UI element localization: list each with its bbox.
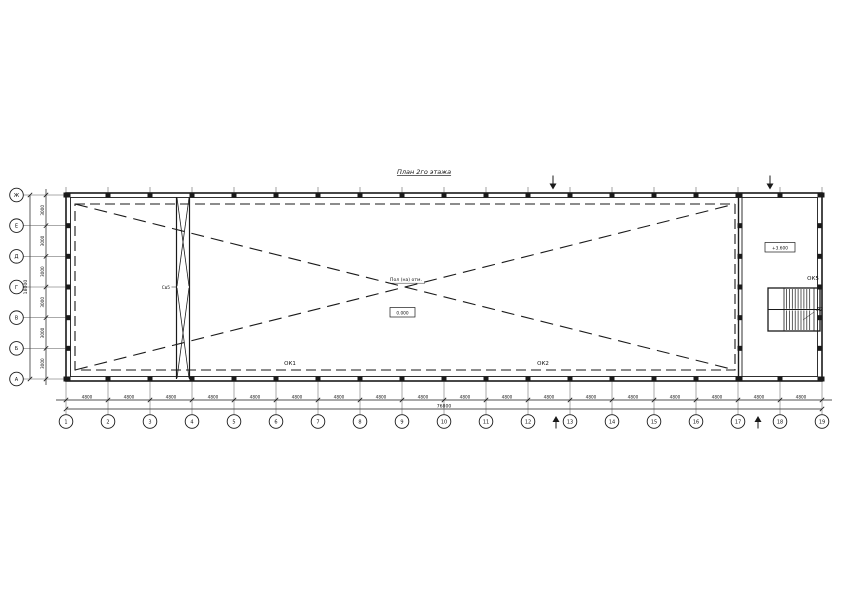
axis-letter: Б bbox=[15, 346, 19, 352]
axis-number: 14 bbox=[609, 419, 615, 425]
column-marker bbox=[66, 223, 71, 228]
column-marker bbox=[694, 193, 699, 198]
column-marker bbox=[358, 193, 363, 198]
column-marker bbox=[526, 377, 531, 382]
column-marker bbox=[484, 377, 489, 382]
column-marker bbox=[232, 377, 237, 382]
window-label-ok1: ОК1 bbox=[284, 361, 296, 367]
bay-dimension: 3000 bbox=[40, 266, 45, 277]
bay-dimension: 4800 bbox=[670, 394, 681, 399]
axis-number: 5 bbox=[232, 419, 235, 425]
column-marker bbox=[818, 285, 823, 290]
column-marker bbox=[738, 315, 743, 320]
column-marker bbox=[568, 193, 573, 198]
column-marker bbox=[442, 377, 447, 382]
column-marker bbox=[568, 377, 573, 382]
bay-dimension: 4800 bbox=[334, 394, 345, 399]
building-walls bbox=[66, 193, 822, 381]
bay-dimension: 4800 bbox=[586, 394, 597, 399]
column-marker bbox=[66, 315, 71, 320]
column-marker bbox=[106, 193, 111, 198]
column-marker bbox=[484, 193, 489, 198]
axis-number: 4 bbox=[190, 419, 193, 425]
axis-number: 19 bbox=[819, 419, 825, 425]
column-marker bbox=[106, 377, 111, 382]
column-marker bbox=[400, 377, 405, 382]
bay-dimension: 4800 bbox=[208, 394, 219, 399]
opening-note: Пол (на) отм. 0.000 bbox=[388, 277, 425, 317]
axis-number: 3 bbox=[148, 419, 151, 425]
column-marker bbox=[316, 377, 321, 382]
column-marker bbox=[818, 377, 823, 382]
bay-dimension: 4800 bbox=[166, 394, 177, 399]
column-marker bbox=[738, 254, 743, 259]
window-label-ok2: ОК2 bbox=[537, 361, 549, 367]
column-marker bbox=[652, 377, 657, 382]
column-marker bbox=[738, 377, 743, 382]
stair-level-mark: +3.600 bbox=[765, 243, 795, 253]
column-marker bbox=[652, 193, 657, 198]
bay-dimension: 4800 bbox=[292, 394, 303, 399]
column-marker bbox=[778, 377, 783, 382]
column-marker bbox=[818, 193, 823, 198]
bay-dimension: 4800 bbox=[544, 394, 555, 399]
column-marker bbox=[738, 346, 743, 351]
column-marker bbox=[190, 377, 195, 382]
axis-number: 10 bbox=[441, 419, 447, 425]
column-marker bbox=[358, 377, 363, 382]
drawing-sheet: План 2го этажа Св5 ОК5 Л2 + bbox=[0, 0, 842, 595]
bay-dimension: 3000 bbox=[40, 205, 45, 216]
horizontal-axes: 1480024800348004480054800648007480084800… bbox=[59, 187, 829, 428]
vertical-brace: Св5 bbox=[162, 197, 190, 379]
column-marker bbox=[738, 193, 743, 198]
column-marker bbox=[442, 193, 447, 198]
axis-number: 15 bbox=[651, 419, 657, 425]
axis-letter: Г bbox=[15, 285, 18, 291]
axis-letter: А bbox=[15, 377, 19, 383]
column-marker bbox=[190, 193, 195, 198]
axis-letter: В bbox=[15, 316, 19, 322]
axis-number: 18 bbox=[777, 419, 783, 425]
axis-number: 12 bbox=[525, 419, 531, 425]
column-marker bbox=[610, 377, 615, 382]
axis-number: 13 bbox=[567, 419, 573, 425]
column-marker bbox=[274, 377, 279, 382]
axis-number: 9 bbox=[400, 419, 403, 425]
column-marker bbox=[148, 377, 153, 382]
column-marker bbox=[400, 193, 405, 198]
column-marker bbox=[316, 193, 321, 198]
axis-letter: Ж bbox=[14, 193, 20, 199]
bay-dimension: 3000 bbox=[40, 235, 45, 246]
bay-dimension: 4800 bbox=[418, 394, 429, 399]
axis-number: 17 bbox=[735, 419, 741, 425]
column-marker bbox=[694, 377, 699, 382]
bay-dimension: 4800 bbox=[628, 394, 639, 399]
section-mark-bottom-left bbox=[553, 416, 560, 429]
column-marker bbox=[66, 377, 71, 382]
column-marker bbox=[66, 254, 71, 259]
axis-number: 7 bbox=[316, 419, 319, 425]
brace-label: Св5 bbox=[162, 285, 171, 291]
bay-dimension: 4800 bbox=[124, 394, 135, 399]
section-mark-top-left bbox=[550, 176, 557, 190]
section-marks bbox=[550, 176, 774, 429]
bay-dimension: 4800 bbox=[376, 394, 387, 399]
bay-dimension: 4800 bbox=[250, 394, 261, 399]
section-mark-top-right bbox=[767, 176, 774, 190]
vertical-axes: Ж3000Е3000Д3000Г3000В3000Б3000А bbox=[10, 188, 66, 386]
axis-number: 1 bbox=[64, 419, 67, 425]
column-marker bbox=[778, 193, 783, 198]
column-marker bbox=[274, 193, 279, 198]
axis-number: 16 bbox=[693, 419, 699, 425]
opening-level-value: 0.000 bbox=[396, 311, 409, 317]
opening-note-text: Пол (на) отм. bbox=[390, 277, 422, 283]
column-marker bbox=[66, 193, 71, 198]
bay-dimension: 3000 bbox=[40, 297, 45, 308]
column-marker bbox=[610, 193, 615, 198]
axis-number: 2 bbox=[106, 419, 109, 425]
bay-dimension: 4800 bbox=[82, 394, 93, 399]
bay-dimension: 4800 bbox=[712, 394, 723, 399]
stair-level-value: +3.600 bbox=[772, 246, 788, 252]
stair-window-label: ОК5 bbox=[807, 276, 819, 282]
column-markers bbox=[64, 193, 825, 382]
axis-number: 11 bbox=[483, 419, 489, 425]
bay-dimension: 3000 bbox=[40, 327, 45, 338]
column-marker bbox=[66, 346, 71, 351]
section-mark-bottom-right bbox=[755, 416, 762, 429]
column-marker bbox=[148, 193, 153, 198]
column-marker bbox=[818, 223, 823, 228]
drawing-title: План 2го этажа bbox=[397, 168, 451, 176]
axis-number: 8 bbox=[358, 419, 361, 425]
stair-number-label: Л2 bbox=[816, 307, 823, 313]
axis-letter: Е bbox=[15, 224, 18, 230]
bay-dimension: 4800 bbox=[460, 394, 471, 399]
column-marker bbox=[232, 193, 237, 198]
bay-dimension: 4800 bbox=[796, 394, 807, 399]
column-marker bbox=[818, 315, 823, 320]
bay-dimension: 3000 bbox=[40, 358, 45, 369]
axis-number: 6 bbox=[274, 419, 277, 425]
bay-dimension: 4800 bbox=[502, 394, 513, 399]
column-marker bbox=[66, 285, 71, 290]
staircase: ОК5 Л2 bbox=[768, 276, 823, 331]
column-marker bbox=[738, 285, 743, 290]
floor-plan-drawing: План 2го этажа Св5 ОК5 Л2 + bbox=[0, 0, 842, 595]
column-marker bbox=[818, 346, 823, 351]
axis-letter: Д bbox=[15, 254, 19, 260]
bay-dimension: 4800 bbox=[754, 394, 765, 399]
column-marker bbox=[738, 223, 743, 228]
column-marker bbox=[526, 193, 531, 198]
column-marker bbox=[818, 254, 823, 259]
